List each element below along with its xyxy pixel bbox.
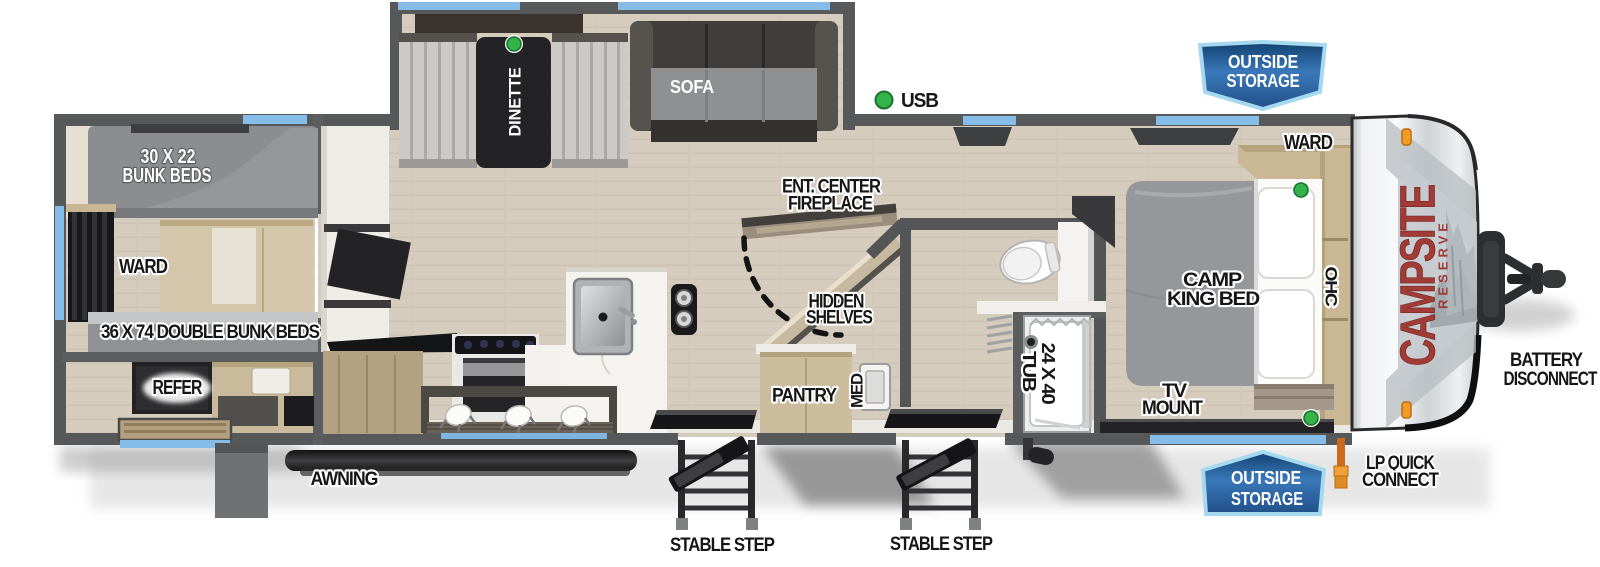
svg-text:SOFA: SOFA: [670, 77, 714, 97]
svg-text:STORAGE: STORAGE: [1227, 71, 1300, 91]
svg-text:FIREPLACE: FIREPLACE: [788, 194, 872, 215]
svg-text:USB: USB: [901, 90, 939, 112]
svg-text:OUTSIDE: OUTSIDE: [1228, 52, 1298, 72]
svg-text:SHELVES: SHELVES: [806, 308, 872, 329]
svg-text:AWNING: AWNING: [311, 468, 378, 490]
svg-text:CONNECT: CONNECT: [1362, 469, 1439, 491]
svg-text:MED: MED: [848, 373, 867, 408]
svg-text:STABLE STEP: STABLE STEP: [670, 534, 775, 556]
svg-text:TUB: TUB: [1019, 351, 1039, 392]
svg-text:RESERVE: RESERVE: [1436, 219, 1451, 309]
svg-text:PANTRY: PANTRY: [772, 386, 837, 407]
svg-text:OHC: OHC: [1322, 267, 1341, 307]
svg-text:DINETTE: DINETTE: [506, 68, 525, 137]
svg-text:36 X 74 DOUBLE BUNK BEDS: 36 X 74 DOUBLE BUNK BEDS: [101, 321, 320, 343]
svg-text:OUTSIDE: OUTSIDE: [1231, 468, 1301, 488]
svg-text:WARD: WARD: [119, 256, 168, 278]
svg-text:WARD: WARD: [1284, 132, 1333, 154]
svg-text:24 X 40: 24 X 40: [1038, 343, 1058, 405]
svg-text:KING BED: KING BED: [1167, 288, 1260, 310]
svg-text:DISCONNECT: DISCONNECT: [1504, 368, 1598, 390]
svg-text:REFER: REFER: [153, 377, 203, 399]
svg-text:MOUNT: MOUNT: [1142, 397, 1203, 419]
svg-text:STABLE STEP: STABLE STEP: [890, 533, 993, 555]
svg-text:BUNK BEDS: BUNK BEDS: [123, 165, 212, 187]
svg-text:STORAGE: STORAGE: [1231, 489, 1303, 509]
